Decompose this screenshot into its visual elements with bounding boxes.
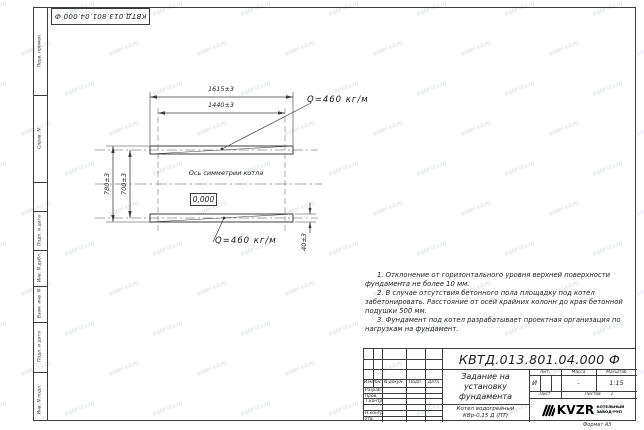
tb-row-tkontr: Т.контр. bbox=[365, 399, 384, 404]
tb-line bbox=[364, 404, 442, 405]
tb-col-ndoc: N докум. bbox=[382, 380, 406, 385]
boiler-axis-label: Ось симметрии котла bbox=[182, 169, 270, 177]
tb-row-nkontr: Н.контр. bbox=[365, 411, 384, 416]
note-1: 1. Отклонение от горизонтального уровня … bbox=[365, 271, 623, 289]
tb-col-podp: Подп. bbox=[406, 380, 425, 385]
kvzr-coil-icon bbox=[542, 404, 555, 417]
dim-width-inner: 1440±3 bbox=[186, 101, 256, 109]
tb-line bbox=[540, 375, 541, 391]
load-label-bottom: Q=460 кг/м bbox=[215, 236, 277, 246]
doc-product: Котел водогрейный КВр-0,15 Д (ПТ) bbox=[455, 406, 517, 420]
tb-line bbox=[364, 416, 442, 417]
dim-height-outer: 780±3 bbox=[103, 173, 111, 195]
format-label: Формат А3 bbox=[583, 422, 611, 428]
dim-rail-height: 40±3 bbox=[300, 233, 308, 251]
kvzr-caption-line2: ЗАВОД-РЭП bbox=[596, 410, 624, 415]
tb-sheet-label: Лист bbox=[529, 392, 561, 397]
tb-mass-value: - bbox=[561, 375, 596, 391]
tb-col-izm: Изм. bbox=[364, 380, 373, 385]
drawing-sheet: kotel-kv.rukotel-kv.rukotel-kv.rukotel-k… bbox=[0, 0, 644, 430]
note-2: 2. В случае отсутствия бетонного пола пл… bbox=[365, 289, 623, 316]
tb-line bbox=[364, 369, 442, 370]
kvzr-logo-caption: КОТЕЛЬНЫЙ ЗАВОД-РЭП bbox=[596, 405, 624, 414]
kvzr-logo-text: KVZR bbox=[557, 403, 595, 417]
tb-scale-value: 1:15 bbox=[596, 375, 637, 391]
note-3: 3. Фундамент под котел разрабатывает про… bbox=[365, 316, 623, 334]
tb-sheets-label: Листов bbox=[585, 392, 601, 397]
notes-block: 1. Отклонение от горизонтального уровня … bbox=[365, 271, 623, 334]
title-block: Изм. Лист N докум. Подп. Дата Разраб. Пр… bbox=[363, 348, 636, 421]
dim-height-inner: 700±3 bbox=[120, 173, 128, 195]
tb-product-cell: Котел водогрейный КВр-0,15 Д (ПТ) bbox=[442, 404, 529, 422]
tb-line bbox=[364, 359, 442, 360]
tb-logo-cell: KVZR КОТЕЛЬНЫЙ ЗАВОД-РЭП bbox=[529, 398, 637, 422]
tb-row-razrab: Разраб. bbox=[365, 388, 382, 393]
doc-number: КВТД.013.801.04.000 Ф bbox=[459, 352, 620, 367]
tb-doc-number-cell: КВТД.013.801.04.000 Ф bbox=[442, 349, 637, 369]
kvzr-logo: KVZR КОТЕЛЬНЫЙ ЗАВОД-РЭП bbox=[529, 398, 637, 422]
tb-lit-value: И bbox=[529, 375, 540, 391]
tb-title-cell: Задание на установку фундамента bbox=[442, 369, 529, 404]
tb-col-list: Лист bbox=[373, 380, 382, 385]
load-label-top: Q=460 кг/м bbox=[307, 95, 369, 105]
tb-sheets-value: 1 bbox=[611, 392, 614, 397]
tb-line bbox=[551, 375, 552, 391]
doc-title: Задание на установку фундамента bbox=[455, 372, 517, 402]
tb-col-data: Дата bbox=[425, 380, 442, 385]
tb-row-utv: Утв. bbox=[365, 417, 374, 422]
dim-width-outer: 1615±3 bbox=[186, 85, 256, 93]
level-mark: 0,000 bbox=[190, 193, 217, 206]
tb-sheets-cell: Листов 1 bbox=[561, 392, 637, 397]
